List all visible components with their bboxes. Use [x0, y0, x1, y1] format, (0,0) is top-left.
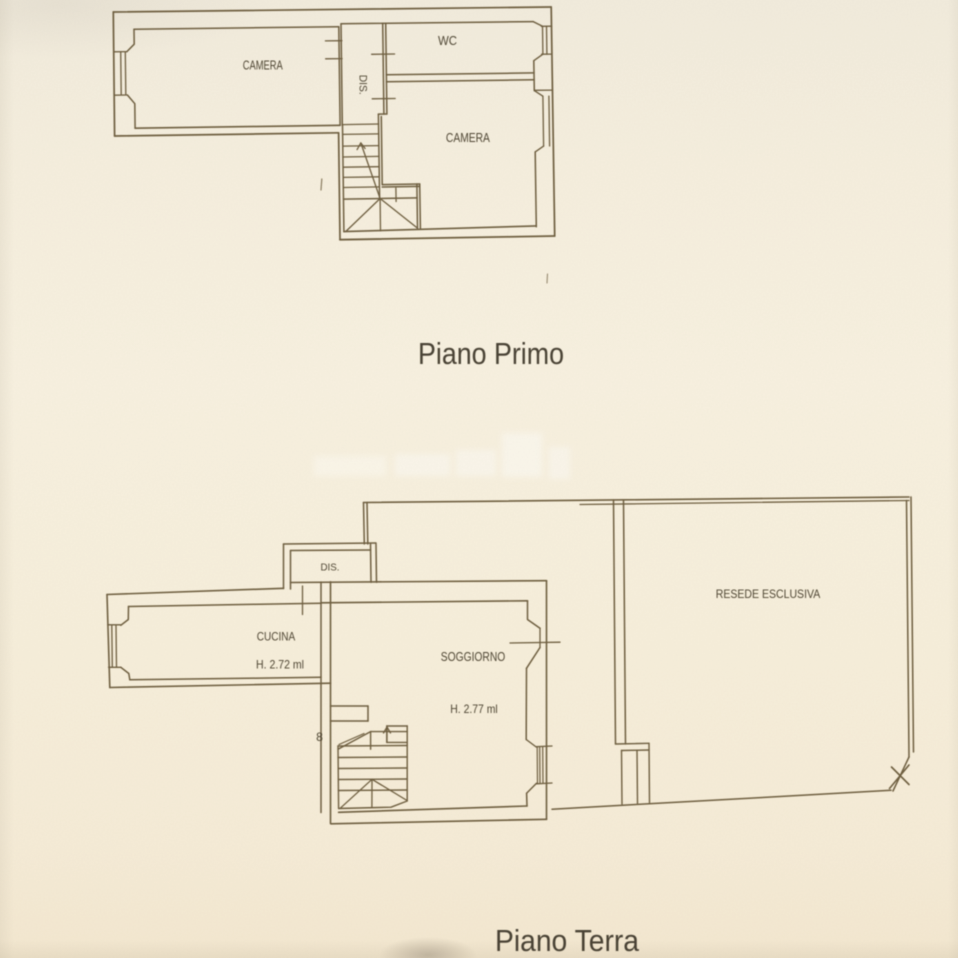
svg-text:Piano Terra: Piano Terra: [495, 923, 640, 958]
svg-text:8: 8: [316, 730, 323, 744]
svg-text:SOGGIORNO: SOGGIORNO: [441, 649, 506, 664]
svg-text:RESEDE ESCLUSIVA: RESEDE ESCLUSIVA: [716, 587, 821, 601]
svg-text:Piano Primo: Piano Primo: [418, 336, 564, 371]
svg-text:H. 2.72 ml: H. 2.72 ml: [256, 658, 304, 672]
svg-text:DIS.: DIS.: [321, 562, 340, 574]
svg-text:CAMERA: CAMERA: [446, 130, 490, 145]
svg-text:CUCINA: CUCINA: [257, 632, 296, 644]
svg-text:WC: WC: [438, 34, 457, 48]
svg-text:DIS.: DIS.: [357, 75, 369, 95]
svg-text:H. 2.77 ml: H. 2.77 ml: [450, 702, 498, 716]
svg-text:CAMERA: CAMERA: [243, 59, 283, 73]
